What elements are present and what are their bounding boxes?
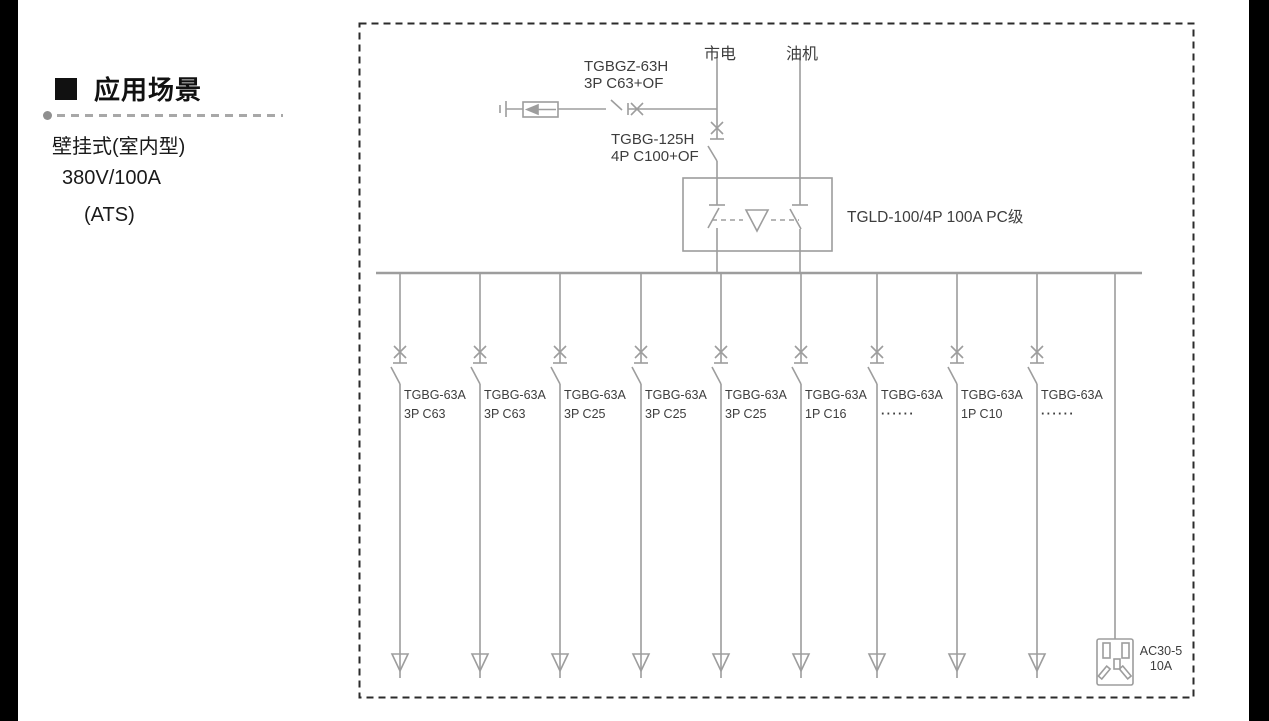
branch-model: TGBG-63A bbox=[725, 386, 787, 405]
page: 应用场景 壁挂式(室内型) 380V/100A (ATS) bbox=[0, 0, 1269, 721]
branch-model: TGBG-63A bbox=[645, 386, 707, 405]
branch-breaker-icon-4 bbox=[632, 273, 649, 678]
branch-label-5: TGBG-63A 3P C25 bbox=[725, 386, 787, 423]
branch-spec: 3P C63 bbox=[484, 405, 546, 424]
branch-label-7: TGBG-63A ······ bbox=[881, 386, 943, 423]
main-breaker-model: TGBG-125H bbox=[611, 131, 699, 148]
branch-spec: 1P C10 bbox=[961, 405, 1023, 424]
branch-spec: ······ bbox=[881, 405, 943, 424]
mains-label: 市电 bbox=[704, 40, 736, 64]
branch-breaker-icon-2 bbox=[471, 273, 488, 678]
branch-model: TGBG-63A bbox=[961, 386, 1023, 405]
spd-breaker-label: TGBGZ-63H 3P C63+OF bbox=[584, 58, 668, 92]
branch-label-2: TGBG-63A 3P C63 bbox=[484, 386, 546, 423]
ats-box-icon bbox=[683, 178, 832, 273]
branch-label-6: TGBG-63A 1P C16 bbox=[805, 386, 867, 423]
branch-breaker-icon-8 bbox=[948, 273, 965, 678]
branch-model: TGBG-63A bbox=[881, 386, 943, 405]
branch-label-1: TGBG-63A 3P C63 bbox=[404, 386, 466, 423]
branch-label-3: TGBG-63A 3P C25 bbox=[564, 386, 626, 423]
branch-model: TGBG-63A bbox=[805, 386, 867, 405]
branch-spec: 3P C63 bbox=[404, 405, 466, 424]
main-breaker-label: TGBG-125H 4P C100+OF bbox=[611, 131, 699, 165]
spd-breaker-model: TGBGZ-63H bbox=[584, 58, 668, 75]
main-breaker-spec: 4P C100+OF bbox=[611, 148, 699, 165]
socket-rating: 10A bbox=[1137, 659, 1185, 674]
branch-breaker-icon-5 bbox=[712, 273, 729, 678]
ground-icon bbox=[500, 101, 523, 117]
main-breaker-icon bbox=[708, 122, 724, 178]
socket-icon bbox=[1097, 639, 1133, 685]
branch-model: TGBG-63A bbox=[404, 386, 466, 405]
branch-spec: 3P C25 bbox=[645, 405, 707, 424]
branch-breaker-icon-1 bbox=[391, 273, 408, 678]
branch-spec: 3P C25 bbox=[725, 405, 787, 424]
branch-label-8: TGBG-63A 1P C10 bbox=[961, 386, 1023, 423]
diagram-dashed-border bbox=[360, 24, 1194, 698]
socket-model: AC30-5 bbox=[1137, 644, 1185, 659]
branch-spec: 3P C25 bbox=[564, 405, 626, 424]
branch-breaker-icon-7 bbox=[868, 273, 885, 678]
branch-breaker-icon-6 bbox=[792, 273, 809, 678]
branch-model: TGBG-63A bbox=[1041, 386, 1103, 405]
generator-label: 油机 bbox=[786, 40, 818, 64]
ats-label: TGLD-100/4P 100A PC级 bbox=[847, 205, 1023, 227]
surge-arrester-icon bbox=[523, 102, 558, 117]
branch-model: TGBG-63A bbox=[564, 386, 626, 405]
branch-label-4: TGBG-63A 3P C25 bbox=[645, 386, 707, 423]
socket-label: AC30-5 10A bbox=[1137, 644, 1185, 674]
branch-spec: ······ bbox=[1041, 405, 1103, 424]
spd-breaker-spec: 3P C63+OF bbox=[584, 75, 668, 92]
branch-breaker-icon-3 bbox=[551, 273, 568, 678]
branch-label-9: TGBG-63A ······ bbox=[1041, 386, 1103, 423]
branch-model: TGBG-63A bbox=[484, 386, 546, 405]
branch-spec: 1P C16 bbox=[805, 405, 867, 424]
single-line-diagram-canvas bbox=[0, 0, 1269, 721]
spd-breaker-icon bbox=[558, 100, 717, 115]
branch-breaker-icon-9 bbox=[1028, 273, 1045, 678]
